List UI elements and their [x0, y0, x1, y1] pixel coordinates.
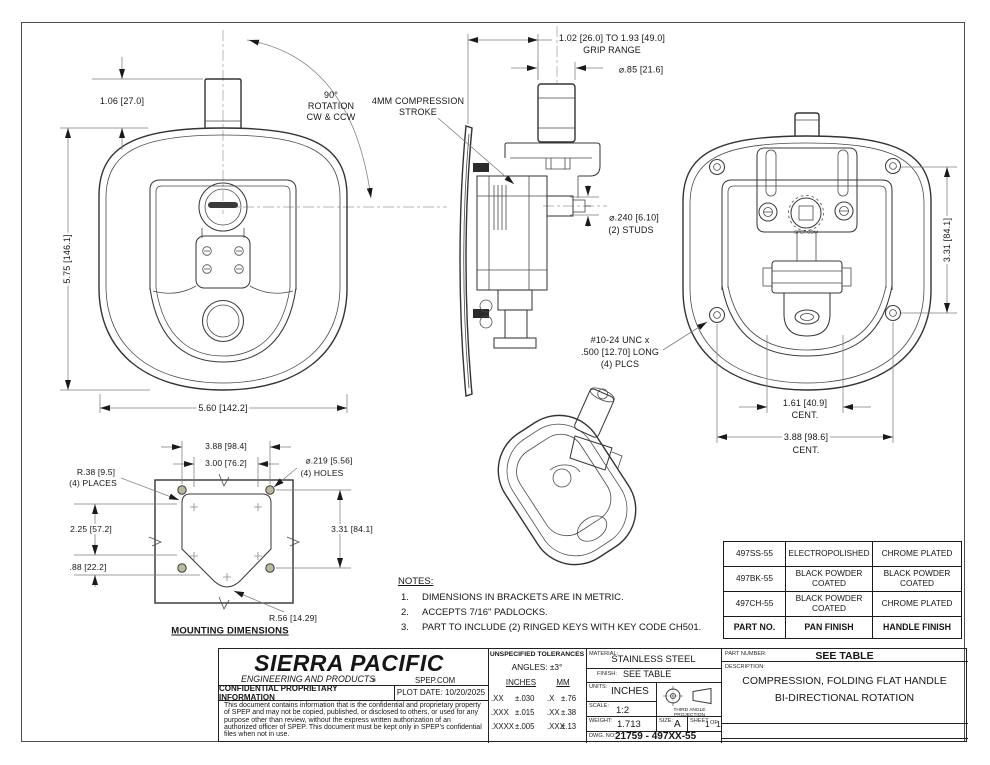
dwg-no-label: DWG. NO: — [589, 733, 616, 739]
note-screws: #10-24 UNC x — [591, 335, 650, 345]
note-item: 2.ACCEPTS 7/16" PADLOCKS. — [398, 607, 701, 622]
mounting-view-title: MOUNTING DIMENSIONS — [171, 626, 288, 637]
note-corner-radius: R.38 [9.5] — [77, 467, 115, 477]
back-view-drawing — [663, 113, 957, 443]
confidential-paragraph: This document contains information that … — [219, 700, 488, 743]
note-mount-holes: ⌀.219 [5.56] — [305, 456, 352, 467]
projection-caption: THIRD ANGLE PROJECTION — [658, 708, 721, 718]
table-cell: 497SS-55 — [724, 542, 786, 567]
finish-table: 497SS-55 ELECTROPOLISHED CHROME PLATED 4… — [723, 541, 962, 639]
table-cell: 497CH-55 — [724, 592, 786, 617]
third-angle-projection-icon — [659, 685, 719, 709]
table-cell: CHROME PLATED — [873, 542, 961, 567]
description-line1: COMPRESSION, FOLDING FLAT HANDLE — [721, 675, 968, 687]
plot-date: PLOT DATE: 10/20/2025 — [394, 685, 488, 700]
company-website: SPEP.COM — [415, 676, 455, 685]
weight-label: WEIGHT: — [589, 718, 612, 724]
scale-value: 1:2 — [616, 705, 629, 716]
table-header-cell: PART NO. — [724, 617, 786, 638]
dim-studs: ⌀.240 [6.10] — [609, 213, 659, 224]
note-rotation: 90° — [324, 90, 338, 100]
sheet-total: 1 — [716, 719, 721, 729]
dim-front-height: 5.75 [146.1] — [62, 232, 72, 285]
finish-value: SEE TABLE — [623, 669, 671, 679]
table-cell: ELECTROPOLISHED — [786, 542, 873, 567]
company-logo: SIERRA PACIFIC — [229, 650, 469, 677]
company-subtitle: ENGINEERING AND PRODUCTS — [241, 674, 375, 684]
note-item: 1.DIMENSIONS IN BRACKETS ARE IN METRIC. — [398, 592, 701, 607]
notes-title: NOTES: — [398, 576, 701, 587]
table-cell: BLACK POWDER COATED — [873, 567, 961, 592]
dim-cent-small: 1.61 [40.9] — [783, 398, 827, 408]
size-value: A — [674, 719, 681, 730]
dim-mount-width-outer: 3.88 [98.4] — [205, 441, 247, 451]
side-view-drawing — [438, 26, 607, 396]
table-header-cell: PAN FINISH — [786, 617, 873, 638]
dim-front-width: 5.60 [142.2] — [196, 403, 249, 413]
dim-mount-height-lower: .88 [22.2] — [68, 562, 109, 572]
notes-section: NOTES: 1.DIMENSIONS IN BRACKETS ARE IN M… — [398, 576, 701, 637]
units-label: UNITS: — [589, 684, 607, 690]
scale-label: SCALE: — [589, 703, 609, 709]
dim-cent-large: 3.88 [98.6] — [782, 432, 830, 442]
dim-back-height: 3.31 [84.1] — [942, 216, 952, 264]
dim-mount-height-upper: 2.25 [57.2] — [68, 524, 114, 534]
table-cell: 497BK-55 — [724, 567, 786, 592]
note-bottom-radius: R.56 [14.29] — [269, 613, 317, 623]
table-cell: BLACK POWDER COATED — [786, 592, 873, 617]
dim-mount-height-right: 3.31 [84.1] — [329, 524, 375, 534]
tolerances-col-inches: INCHES — [500, 678, 542, 687]
tolerances-angles: ANGLES: ±3° — [488, 662, 586, 672]
size-label: SIZE: — [659, 718, 673, 724]
table-cell: CHROME PLATED — [873, 592, 961, 617]
gear-brand-text: SPEP.COM — [794, 230, 818, 235]
units-value: INCHES — [611, 686, 649, 697]
dim-knob-diameter: ⌀.85 [21.6] — [619, 65, 664, 76]
dim-grip-range: 1.02 [26.0] TO 1.93 [49.0] — [559, 33, 665, 43]
description-line2: BI-DIRECTIONAL ROTATION — [721, 692, 968, 704]
material-value: STAINLESS STEEL — [586, 654, 721, 665]
table-cell: BLACK POWDER COATED — [786, 567, 873, 592]
tolerances-header: UNSPECIFIED TOLERANCES — [488, 651, 586, 658]
confidential-header: CONFIDENTIAL PROPRIETARY INFORMATION — [219, 685, 394, 700]
dim-front-offset: 1.06 [27.0] — [100, 96, 144, 106]
title-block: SIERRA PACIFIC ENGINEERING AND PRODUCTS … — [218, 648, 967, 742]
isometric-view-drawing — [481, 384, 652, 581]
finish-label: FINISH: — [597, 671, 617, 677]
weight-value: 1.713 — [617, 719, 641, 730]
table-header-cell: HANDLE FINISH — [873, 617, 961, 638]
drawing-sheet: 1.06 [27.0] 5.75 [146.1] 5.60 [142.2] 90… — [0, 0, 990, 765]
dwg-no-value: 21759 - 497XX-55 — [615, 731, 696, 742]
dim-mount-width-inner: 3.00 [76.2] — [205, 458, 247, 468]
description-label: DESCRIPTION: — [725, 664, 765, 670]
part-number-value: SEE TABLE — [721, 650, 968, 662]
note-compression: 4MM COMPRESSION — [372, 96, 464, 106]
front-view-drawing — [60, 30, 447, 413]
tolerances-col-mm: MM — [549, 678, 577, 687]
note-item: 3.PART TO INCLUDE (2) RINGED KEYS WITH K… — [398, 622, 701, 637]
